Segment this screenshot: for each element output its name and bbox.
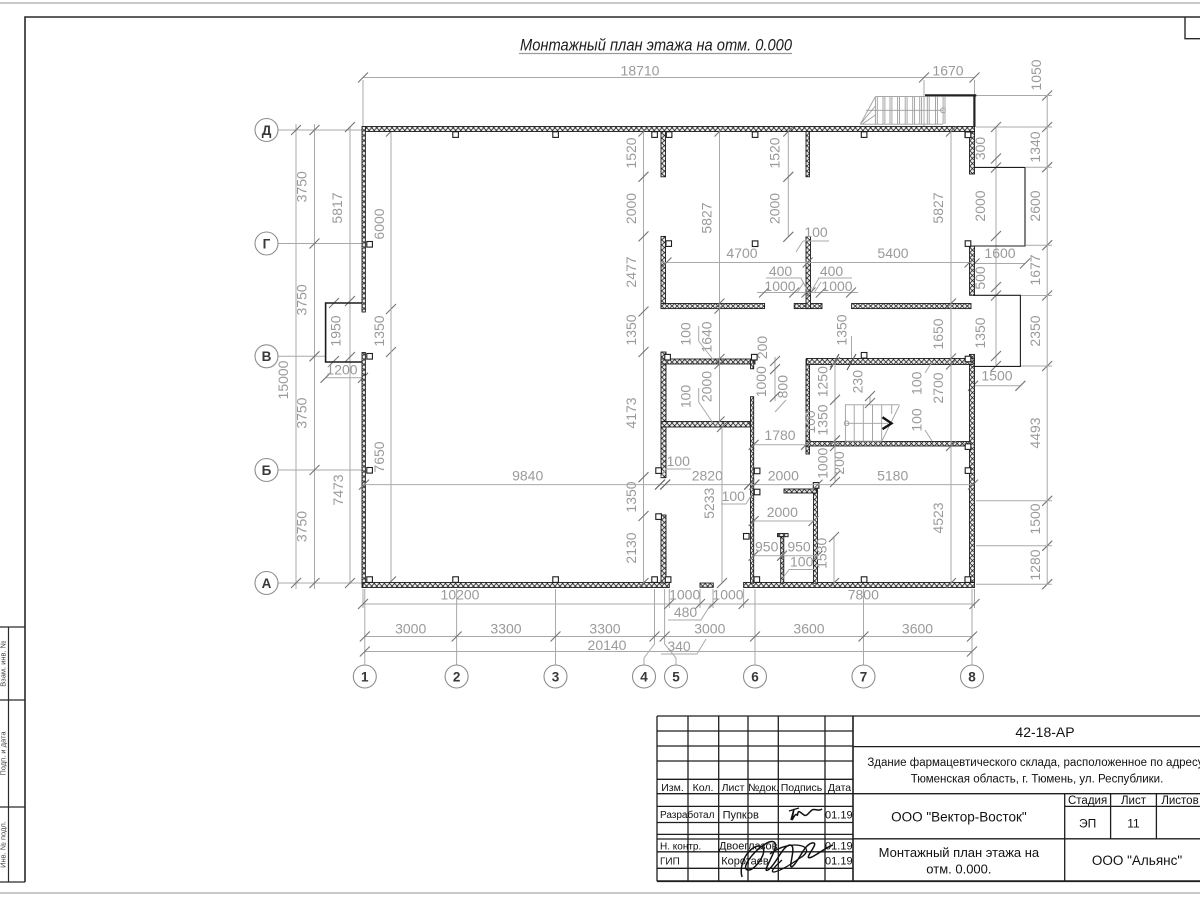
svg-text:1000: 1000 (821, 278, 852, 294)
svg-text:7800: 7800 (848, 587, 879, 603)
svg-text:100: 100 (667, 453, 691, 469)
svg-text:4173: 4173 (623, 397, 639, 428)
svg-text:1200: 1200 (326, 362, 357, 378)
svg-text:480: 480 (674, 604, 698, 620)
svg-text:1350: 1350 (834, 314, 850, 345)
svg-text:100: 100 (790, 554, 814, 570)
svg-text:1950: 1950 (328, 315, 344, 346)
svg-text:1520: 1520 (767, 137, 783, 168)
svg-text:1520: 1520 (623, 137, 639, 168)
svg-text:3750: 3750 (294, 284, 310, 315)
svg-text:1000: 1000 (814, 448, 830, 479)
svg-text:Н. контр.: Н. контр. (660, 842, 701, 853)
svg-text:5: 5 (672, 669, 680, 684)
svg-text:01.19: 01.19 (825, 810, 853, 822)
svg-text:Монтажный план этажа на: Монтажный план этажа на (879, 845, 1040, 860)
svg-text:5400: 5400 (877, 245, 908, 261)
svg-text:3000: 3000 (694, 621, 725, 637)
svg-text:Здание фармацевтического склад: Здание фармацевтического склада, располо… (867, 757, 1200, 769)
svg-text:1640: 1640 (699, 321, 715, 352)
svg-text:10200: 10200 (441, 587, 480, 603)
svg-text:Б: Б (262, 463, 272, 478)
svg-text:ООО "Вектор-Восток": ООО "Вектор-Восток" (891, 810, 1027, 825)
svg-text:1250: 1250 (815, 366, 831, 397)
svg-text:2000: 2000 (699, 371, 715, 402)
svg-text:Лист: Лист (1121, 795, 1147, 807)
svg-text:4523: 4523 (930, 502, 946, 533)
svg-text:1350: 1350 (371, 315, 387, 346)
svg-text:2350: 2350 (1027, 315, 1043, 346)
svg-text:2700: 2700 (930, 372, 946, 403)
svg-text:400: 400 (820, 263, 844, 279)
svg-text:2000: 2000 (768, 468, 799, 484)
svg-text:1350: 1350 (623, 314, 639, 345)
svg-text:Г: Г (263, 236, 271, 251)
svg-text:1280: 1280 (1027, 549, 1043, 580)
svg-text:400: 400 (769, 263, 793, 279)
svg-text:Стадия: Стадия (1068, 795, 1107, 807)
svg-text:2000: 2000 (623, 193, 639, 224)
svg-text:3300: 3300 (490, 621, 521, 637)
svg-text:9840: 9840 (512, 468, 543, 484)
svg-text:1350: 1350 (972, 317, 988, 348)
svg-text:950: 950 (755, 539, 779, 555)
svg-text:Дата: Дата (828, 782, 851, 794)
svg-text:1670: 1670 (932, 63, 963, 79)
svg-text:2000: 2000 (972, 190, 988, 221)
svg-text:100: 100 (802, 410, 818, 434)
svg-text:3600: 3600 (902, 621, 933, 637)
svg-text:3000: 3000 (395, 621, 426, 637)
svg-text:1530: 1530 (814, 538, 830, 569)
svg-text:Изм.: Изм. (661, 782, 684, 794)
svg-text:18710: 18710 (621, 63, 660, 79)
svg-text:1000: 1000 (764, 278, 795, 294)
svg-text:1000: 1000 (712, 587, 743, 603)
svg-text:2477: 2477 (623, 256, 639, 287)
svg-text:8: 8 (968, 669, 976, 684)
svg-text:5827: 5827 (699, 202, 715, 233)
svg-text:200: 200 (831, 451, 847, 475)
svg-text:1: 1 (361, 669, 369, 684)
svg-text:3750: 3750 (294, 511, 310, 542)
svg-text:5233: 5233 (701, 488, 717, 519)
svg-text:6: 6 (751, 669, 759, 684)
svg-text:6000: 6000 (371, 208, 387, 239)
svg-text:№док.: №док. (748, 782, 779, 794)
svg-text:ООО "Альянс": ООО "Альянс" (1092, 853, 1182, 868)
svg-text:3300: 3300 (589, 621, 620, 637)
svg-text:1500: 1500 (1027, 503, 1043, 534)
svg-text:Монтажный план этажа на отм. 0: Монтажный план этажа на отм. 0.000 (520, 36, 792, 55)
svg-text:100: 100 (909, 371, 925, 395)
svg-text:Подп. и дата: Подп. и дата (0, 731, 8, 776)
svg-text:2820: 2820 (692, 468, 723, 484)
svg-text:А: А (262, 576, 272, 591)
svg-text:4700: 4700 (726, 245, 757, 261)
svg-text:1000: 1000 (669, 587, 700, 603)
svg-text:В: В (262, 349, 272, 364)
svg-text:01.19: 01.19 (825, 856, 853, 868)
svg-text:2600: 2600 (1027, 190, 1043, 221)
svg-text:42-18-АР: 42-18-АР (1015, 724, 1074, 740)
svg-text:1600: 1600 (984, 245, 1015, 261)
svg-text:100: 100 (722, 488, 746, 504)
svg-text:Пупков: Пупков (723, 810, 759, 822)
svg-text:100: 100 (678, 385, 694, 409)
svg-text:3750: 3750 (294, 171, 310, 202)
svg-text:1780: 1780 (764, 427, 795, 443)
svg-text:100: 100 (909, 408, 925, 432)
svg-text:1350: 1350 (623, 481, 639, 512)
svg-text:ГИП: ГИП (660, 857, 680, 868)
svg-text:3750: 3750 (294, 397, 310, 428)
svg-text:Разработал: Разработал (660, 809, 715, 821)
svg-text:4: 4 (640, 669, 648, 684)
svg-text:7: 7 (860, 669, 868, 684)
svg-text:1000: 1000 (753, 366, 769, 397)
svg-text:2000: 2000 (767, 193, 783, 224)
svg-text:11: 11 (1127, 817, 1140, 831)
svg-text:7650: 7650 (371, 441, 387, 472)
svg-text:15000: 15000 (275, 360, 291, 399)
svg-text:100: 100 (678, 322, 694, 346)
svg-text:1500: 1500 (981, 368, 1012, 384)
svg-text:Инв. № подл.: Инв. № подл. (0, 821, 8, 868)
svg-text:100: 100 (804, 224, 828, 240)
svg-text:Лист: Лист (722, 782, 745, 794)
svg-text:3600: 3600 (793, 621, 824, 637)
svg-text:20140: 20140 (588, 637, 627, 653)
svg-text:1650: 1650 (930, 318, 946, 349)
svg-text:4493: 4493 (1027, 417, 1043, 448)
svg-text:Взам. инв. №: Взам. инв. № (0, 640, 8, 686)
svg-text:200: 200 (754, 336, 770, 360)
svg-text:Листов: Листов (1161, 795, 1198, 807)
svg-text:отм. 0.000.: отм. 0.000. (926, 862, 991, 877)
svg-text:Д: Д (262, 123, 272, 138)
svg-text:5827: 5827 (930, 192, 946, 223)
svg-text:Кол.: Кол. (693, 782, 714, 794)
svg-text:7473: 7473 (330, 474, 346, 505)
svg-text:ЭП: ЭП (1079, 817, 1096, 831)
svg-text:230: 230 (850, 370, 866, 394)
svg-text:2130: 2130 (623, 532, 639, 563)
svg-text:2000: 2000 (767, 504, 798, 520)
svg-text:1340: 1340 (1027, 131, 1043, 162)
svg-text:Подпись: Подпись (781, 782, 823, 794)
svg-text:Тюменская область, г. Тюмень,: Тюменская область, г. Тюмень, ул. Респуб… (911, 774, 1164, 786)
svg-text:2: 2 (453, 669, 461, 684)
svg-text:5180: 5180 (877, 468, 908, 484)
svg-text:1050: 1050 (1028, 59, 1044, 90)
svg-text:3: 3 (552, 669, 560, 684)
svg-text:950: 950 (787, 539, 811, 555)
svg-text:5817: 5817 (329, 192, 345, 223)
